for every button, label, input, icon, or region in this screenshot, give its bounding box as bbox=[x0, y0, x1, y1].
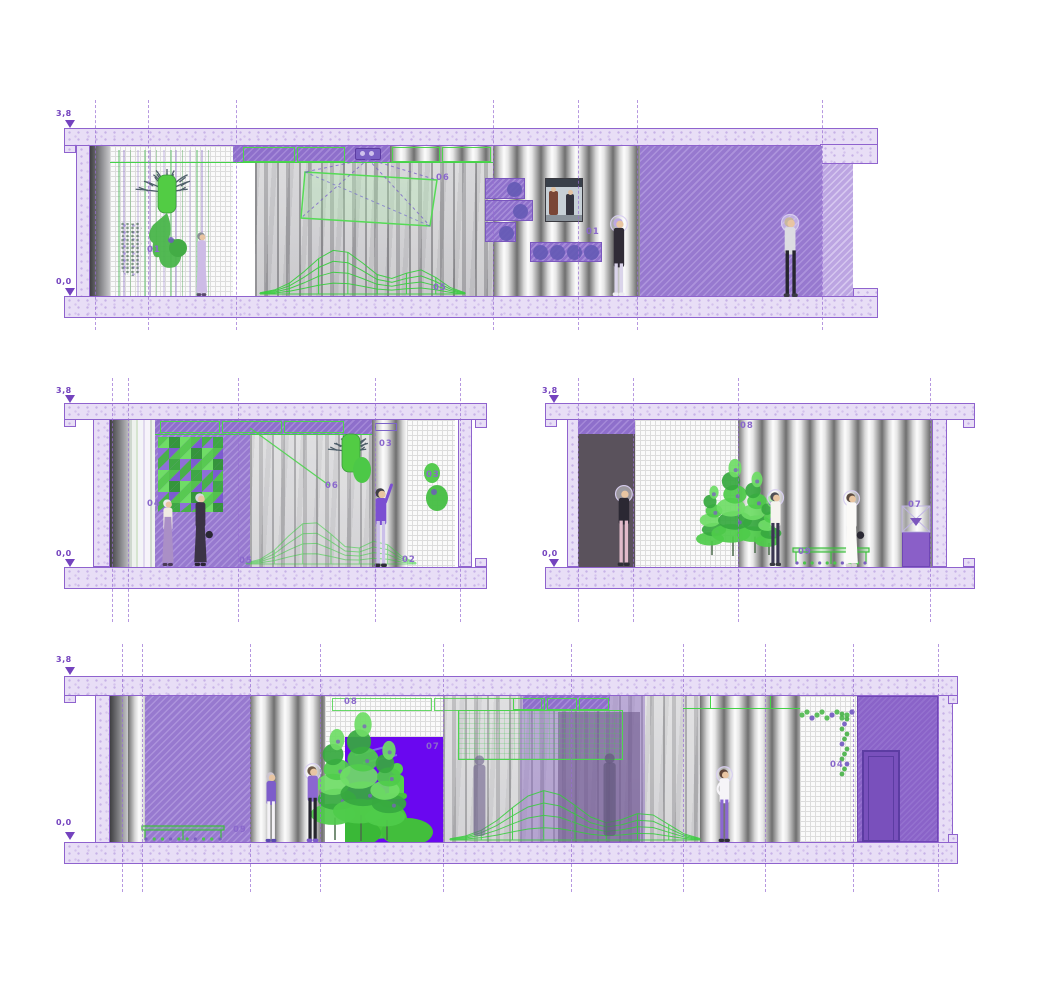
section-long-upper: 3,8 0,0 bbox=[64, 108, 880, 330]
grid-wall bbox=[635, 420, 738, 567]
hanging-rail-post bbox=[710, 696, 711, 708]
grid-line bbox=[822, 100, 823, 330]
wall-edge-shade bbox=[110, 420, 130, 567]
floor-slab bbox=[545, 567, 975, 589]
ceiling-track bbox=[442, 147, 491, 162]
grid-line bbox=[578, 100, 579, 330]
grid-line bbox=[122, 644, 123, 892]
elevation-label-lower: 0,0 bbox=[56, 818, 72, 827]
roof-slab bbox=[64, 676, 958, 696]
wall-stub bbox=[963, 419, 975, 428]
interior-space bbox=[90, 146, 822, 296]
dark-wall bbox=[578, 434, 635, 567]
grid-line bbox=[128, 378, 129, 622]
interior-space bbox=[110, 420, 455, 567]
ceiling-band bbox=[578, 420, 635, 434]
purple-wall bbox=[145, 696, 250, 842]
wall-edge-shade bbox=[90, 146, 110, 296]
roof-slab bbox=[545, 403, 975, 420]
corrugated-wall bbox=[250, 696, 325, 842]
wall-stub bbox=[64, 695, 76, 703]
elevation-label-upper: 3,8 bbox=[56, 109, 72, 118]
callout-label: 01 bbox=[586, 227, 600, 237]
interior-space bbox=[578, 420, 932, 567]
grid-line bbox=[375, 378, 376, 622]
wall-stub bbox=[64, 419, 76, 427]
callout-label: 08 bbox=[344, 697, 358, 707]
elevation-label-lower: 0,0 bbox=[56, 549, 72, 558]
hanging-rail-post bbox=[770, 696, 771, 708]
grid-line bbox=[250, 644, 251, 892]
speaker-tile bbox=[485, 222, 516, 242]
mesh-screen bbox=[458, 710, 623, 760]
floor-slab bbox=[64, 842, 958, 864]
wall-stub bbox=[475, 558, 487, 567]
wall-beyond-cut bbox=[822, 164, 853, 296]
elevation-label-lower: 0,0 bbox=[542, 549, 558, 558]
ceiling-track bbox=[392, 147, 440, 162]
elevation-marker-icon bbox=[65, 120, 75, 128]
elevation-marker-icon bbox=[65, 288, 75, 296]
callout-label: 08 bbox=[740, 421, 754, 431]
elevation-marker-icon bbox=[65, 559, 75, 567]
wall-column-right bbox=[932, 419, 947, 567]
grid-line bbox=[493, 100, 494, 330]
grid-line bbox=[571, 644, 572, 892]
callout-label: 09 bbox=[798, 547, 812, 557]
ceiling-track bbox=[222, 421, 282, 433]
callout-label: 05 bbox=[433, 283, 447, 293]
elevation-label-upper: 3,8 bbox=[56, 386, 72, 395]
wall-column-left bbox=[76, 145, 90, 297]
grid-line bbox=[633, 378, 634, 622]
moss-panel bbox=[120, 222, 142, 276]
ceiling-track bbox=[284, 421, 344, 433]
grid-line bbox=[238, 378, 239, 622]
architectural-drawing: 3,8 0,0 bbox=[0, 0, 1040, 1000]
callout-label: 06 bbox=[325, 481, 339, 491]
grid-line bbox=[853, 644, 854, 892]
elevation-marker-icon bbox=[65, 832, 75, 840]
curtain-wall bbox=[255, 163, 493, 296]
interior-space bbox=[110, 696, 938, 842]
door bbox=[862, 750, 900, 842]
speaker-tile bbox=[485, 178, 525, 199]
wall-column-left bbox=[95, 695, 110, 843]
callout-label: 04 bbox=[147, 499, 161, 509]
elevation-label-lower: 0,0 bbox=[56, 277, 72, 286]
hanging-rail bbox=[110, 162, 493, 163]
ceiling-track bbox=[243, 147, 295, 162]
callout-label: 06 bbox=[436, 173, 450, 183]
ceiling-track bbox=[160, 421, 220, 433]
elevation-marker-icon bbox=[65, 395, 75, 403]
grid-line bbox=[112, 378, 113, 622]
ceiling-track bbox=[579, 698, 609, 710]
ceiling-track bbox=[297, 147, 345, 162]
roof-slab-step bbox=[820, 144, 878, 164]
curtain-wall bbox=[250, 434, 372, 567]
roof-slab bbox=[64, 128, 878, 146]
wall-edge-shade bbox=[110, 696, 128, 842]
suspended-track bbox=[434, 698, 542, 711]
wall-stub bbox=[475, 419, 487, 428]
grid-line bbox=[930, 378, 931, 622]
grid-line bbox=[236, 100, 237, 330]
purple-wall bbox=[640, 146, 822, 296]
grid-line bbox=[95, 100, 96, 330]
ceiling-track bbox=[547, 698, 577, 710]
grid-line bbox=[148, 100, 149, 330]
wall-stub bbox=[64, 145, 76, 153]
grid-line bbox=[765, 644, 766, 892]
corrugated-wall bbox=[700, 696, 800, 842]
grid-line bbox=[738, 378, 739, 622]
callout-label: 09 bbox=[233, 825, 247, 835]
speaker-tile-row bbox=[530, 242, 602, 262]
wall-stub bbox=[963, 558, 975, 567]
callout-label: 01 bbox=[147, 245, 161, 255]
callout-label: 03 bbox=[426, 470, 440, 480]
wall-stub bbox=[948, 695, 958, 704]
callout-label: 07 bbox=[426, 742, 440, 752]
purple-wall bbox=[155, 420, 250, 567]
grid-line bbox=[938, 644, 939, 892]
display-pedestal bbox=[902, 532, 930, 567]
duotone-image bbox=[345, 737, 443, 842]
floor-slab bbox=[64, 296, 878, 318]
callout-label: 05 bbox=[239, 556, 253, 566]
grid-line bbox=[460, 378, 461, 622]
elevation-label-upper: 3,8 bbox=[56, 655, 72, 664]
grid-line bbox=[683, 644, 684, 892]
elevation-marker-icon bbox=[549, 395, 559, 403]
callout-label: 04 bbox=[830, 760, 844, 770]
section-long-lower: 3,8 0,0 bbox=[64, 652, 960, 886]
wall-stub bbox=[545, 419, 557, 427]
grid-line bbox=[637, 100, 638, 330]
grid-wall bbox=[800, 696, 857, 842]
wall-fixture-outline bbox=[375, 423, 397, 431]
elevation-label-upper: 3,8 bbox=[542, 386, 558, 395]
elevation-marker-icon bbox=[549, 559, 559, 567]
stripe-wall bbox=[130, 420, 155, 567]
elevation-marker-icon bbox=[65, 667, 75, 675]
grid-line bbox=[578, 378, 579, 622]
callout-label: 02 bbox=[402, 555, 416, 565]
hanging-rail bbox=[683, 708, 810, 709]
grid-line bbox=[443, 644, 444, 892]
hanging-rail bbox=[155, 434, 395, 435]
wall-column-right bbox=[938, 695, 953, 843]
grid-line bbox=[142, 644, 143, 892]
wall-column-left bbox=[93, 419, 110, 567]
callout-label: 07 bbox=[908, 500, 922, 510]
projector-icon bbox=[355, 148, 381, 160]
callout-label: 03 bbox=[379, 439, 393, 449]
grid-line bbox=[320, 644, 321, 892]
grid-wall bbox=[407, 420, 455, 567]
